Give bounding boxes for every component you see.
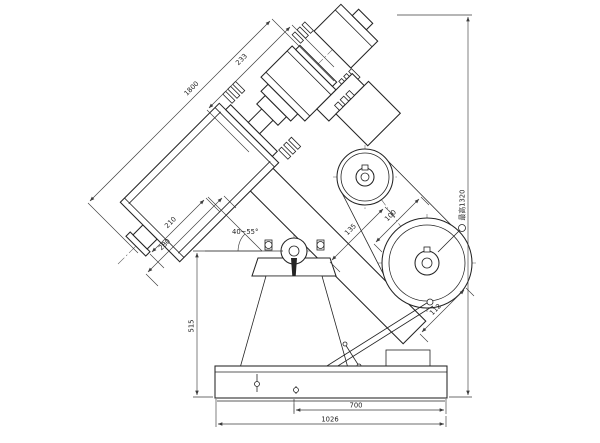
rod-pin	[427, 299, 433, 305]
anchor-bolt-left	[255, 382, 260, 387]
angle-label: 40~55°	[232, 228, 258, 236]
bracket-bolt-right	[317, 242, 324, 249]
drawing-canvas: 最高1320 515 700 1026 233 1800 210 280	[0, 0, 600, 443]
pedestal	[240, 276, 348, 368]
large-pulley	[382, 218, 472, 308]
dim-label-pulley-a: 135	[343, 222, 358, 237]
dim-label-base-total: 1026	[321, 416, 338, 424]
bracket-bolt-left	[265, 242, 272, 249]
dim-label-pulley-b: 100	[383, 208, 398, 223]
technical-drawing: 最高1320 515 700 1026 233 1800 210 280	[0, 0, 600, 443]
dim-label-base-right: 700	[350, 402, 363, 410]
small-pulley	[337, 149, 393, 205]
frame-foot	[386, 350, 430, 368]
dim-label-total-height: 最高1320	[458, 190, 467, 221]
crank-handle	[459, 225, 466, 232]
dim-label-axis-total: 1800	[183, 80, 201, 98]
dim-label-pivot-height: 515	[188, 320, 196, 333]
anchor-bolt-center	[294, 388, 299, 393]
